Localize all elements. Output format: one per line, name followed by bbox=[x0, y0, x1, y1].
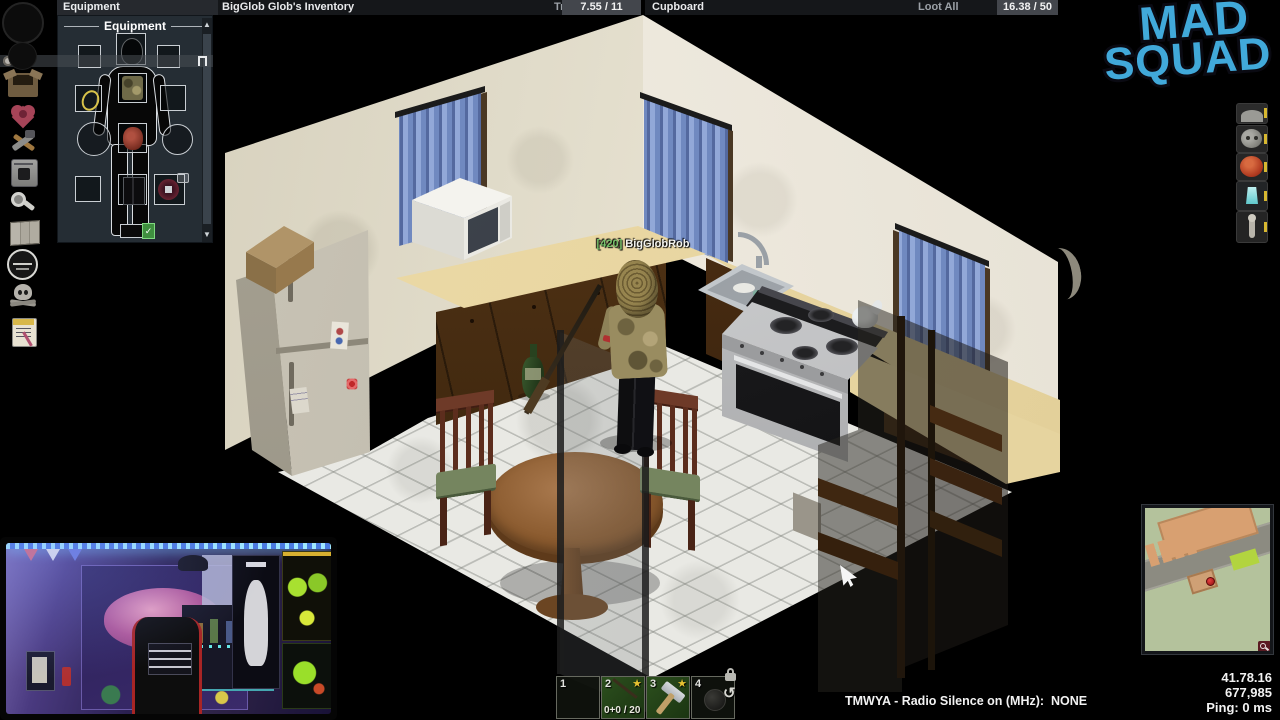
sink-dish bbox=[733, 283, 755, 293]
character-legs bbox=[617, 371, 656, 450]
figure-head bbox=[1248, 214, 1256, 222]
zoom-stick bbox=[1265, 647, 1269, 651]
door-frame-post bbox=[557, 330, 564, 674]
figure-icon[interactable] bbox=[1236, 211, 1268, 243]
loot-title: Cupboard bbox=[652, 0, 704, 15]
slot-torso[interactable] bbox=[118, 73, 147, 103]
cabinet-knob bbox=[532, 305, 536, 309]
angry-face-icon[interactable] bbox=[1236, 153, 1268, 181]
sloth-eye bbox=[1254, 136, 1258, 140]
session-stats: 41.78.16 677,985 Ping: 0 ms bbox=[1206, 670, 1272, 715]
furnace-lid bbox=[14, 163, 33, 165]
journal-icon[interactable] bbox=[12, 318, 37, 347]
ammo-count: 0+0 / 20 bbox=[604, 705, 640, 716]
equipped-check: ✓ bbox=[142, 223, 155, 239]
furnace-window bbox=[18, 168, 30, 180]
chair-slat bbox=[479, 404, 484, 467]
chair-leg bbox=[440, 497, 447, 546]
player-nametag: [420] BigGlobRob bbox=[558, 238, 728, 250]
camo-shirt-icon bbox=[122, 76, 143, 100]
slot-number: 4 bbox=[695, 678, 701, 690]
slot-number: 1 bbox=[560, 678, 566, 690]
slot-necklace[interactable] bbox=[75, 85, 102, 112]
tool-head bbox=[25, 130, 35, 138]
fav-notch bbox=[1264, 191, 1267, 201]
radio-status: TMWYA - Radio Silence on (MHz): NONE bbox=[845, 694, 1087, 708]
fridge-flower-magnet bbox=[345, 377, 359, 391]
stove-burner bbox=[770, 317, 802, 334]
lantern-glass bbox=[1246, 187, 1258, 204]
barricade-post bbox=[897, 316, 905, 678]
ping-text: Ping: 0 ms bbox=[1206, 700, 1272, 715]
hotbar-lock-icon[interactable] bbox=[724, 668, 737, 681]
character-shoe bbox=[614, 444, 631, 454]
search-handle bbox=[23, 200, 36, 211]
hotbar-slot-1[interactable]: 1 bbox=[556, 676, 600, 719]
necklace-icon bbox=[79, 88, 103, 114]
equipment-scrollbar[interactable]: ▲ ▼ bbox=[202, 18, 212, 242]
clock-circle[interactable] bbox=[2, 2, 44, 44]
fridge-kid-drawing bbox=[330, 321, 349, 349]
pin-icon[interactable] bbox=[198, 56, 207, 66]
number-text: 677,985 bbox=[1206, 685, 1272, 700]
slot-left-lower[interactable] bbox=[75, 176, 101, 202]
stove-knob bbox=[800, 365, 804, 369]
character-ghillie-hood bbox=[616, 260, 658, 318]
mad-squad-logo: MAD SQUAD bbox=[1097, 0, 1277, 83]
chair-slat bbox=[440, 410, 445, 473]
box-opening bbox=[13, 75, 33, 85]
skull-eye bbox=[24, 290, 28, 295]
sink-faucet-base bbox=[756, 256, 762, 268]
glow-overlay bbox=[6, 543, 331, 714]
loot-weight: 16.38 / 50 bbox=[997, 0, 1058, 15]
map-icon[interactable] bbox=[10, 220, 40, 246]
chair-leg bbox=[688, 500, 695, 551]
slot-back[interactable] bbox=[160, 85, 186, 111]
angry-face-shape bbox=[1240, 156, 1263, 177]
sloth-face-shape bbox=[1241, 129, 1262, 148]
favorite-star-icon: ★ bbox=[632, 677, 642, 690]
equipment-header: Equipment bbox=[58, 16, 212, 33]
slot-hand-left[interactable] bbox=[77, 122, 111, 156]
pants-icon bbox=[123, 177, 145, 205]
fav-notch bbox=[1264, 108, 1267, 118]
cabinet-knob bbox=[470, 319, 474, 323]
scroll-down-icon[interactable]: ▼ bbox=[203, 230, 211, 239]
skull-head bbox=[14, 284, 32, 300]
fridge-note-paper bbox=[290, 387, 310, 414]
watch-face-icon bbox=[165, 186, 172, 193]
inventory-title: BigGlob Glob's Inventory bbox=[222, 0, 354, 15]
skull-icon[interactable] bbox=[10, 284, 36, 310]
coordinates-text: 41.78.16 bbox=[1206, 670, 1272, 685]
stove-burner bbox=[808, 308, 834, 322]
lock-body bbox=[725, 673, 736, 681]
journal-band bbox=[13, 319, 34, 325]
slot-belly[interactable] bbox=[118, 123, 147, 153]
fav-notch bbox=[1264, 222, 1267, 232]
loot-window-titlebar[interactable]: Cupboard Loot All 16.38 / 50 bbox=[645, 0, 1058, 15]
header-line bbox=[171, 26, 206, 27]
chair-leg bbox=[484, 490, 491, 535]
fav-notch bbox=[1264, 134, 1267, 144]
sloth-eye bbox=[1246, 136, 1250, 140]
badge-text-line bbox=[16, 268, 29, 270]
chair-left[interactable] bbox=[436, 389, 498, 557]
chair-slat bbox=[692, 408, 697, 475]
hotbar-slot-2[interactable]: 2 ★ 0+0 / 20 bbox=[601, 676, 645, 719]
inventory-box-icon[interactable] bbox=[8, 73, 38, 97]
inventory-weight: 7.55 / 11 bbox=[562, 0, 641, 15]
slot-hand-right[interactable] bbox=[162, 124, 193, 155]
search-icon[interactable] bbox=[9, 190, 37, 217]
stove-knob bbox=[820, 372, 824, 376]
chair-slat bbox=[466, 406, 471, 469]
loot-all-button[interactable]: Loot All bbox=[918, 0, 959, 15]
scroll-up-icon[interactable]: ▲ bbox=[203, 20, 211, 29]
slot-wrist[interactable] bbox=[154, 174, 185, 205]
stove-knob bbox=[760, 351, 764, 355]
gray-face-icon[interactable] bbox=[1236, 103, 1268, 124]
hotbar-cycle-icon[interactable]: ↺ bbox=[723, 684, 741, 702]
fav-notch bbox=[1264, 162, 1267, 172]
nametag-tag: [420] bbox=[597, 238, 623, 250]
faction-badge-icon[interactable] bbox=[7, 249, 38, 280]
header-line bbox=[64, 26, 99, 27]
minimap-player-marker bbox=[1206, 577, 1215, 586]
lantern-icon[interactable] bbox=[1236, 181, 1268, 211]
nametag-name: BigGlobRob bbox=[625, 238, 689, 250]
right-icon-stack bbox=[1236, 103, 1270, 243]
chair-slat bbox=[488, 403, 493, 466]
equipment-window[interactable]: Equipment bbox=[57, 15, 213, 243]
moodle-circle bbox=[8, 42, 37, 70]
health-heart-icon[interactable] bbox=[11, 101, 35, 125]
webcam-feed bbox=[6, 543, 331, 714]
skull-eye bbox=[18, 290, 22, 295]
stove-burner bbox=[792, 346, 818, 360]
equipment-header-label: Equipment bbox=[104, 19, 166, 33]
chair-slat bbox=[683, 407, 688, 474]
wine-bottle-label bbox=[525, 368, 541, 380]
hotbar-slot-3[interactable]: 3 ★ bbox=[646, 676, 690, 719]
webcam-overlay bbox=[0, 537, 337, 720]
logo-line-2: SQUAD bbox=[1099, 34, 1276, 83]
furnace-icon[interactable] bbox=[11, 159, 38, 187]
stove-knob bbox=[780, 358, 784, 362]
slot-shoes[interactable] bbox=[120, 224, 144, 238]
chair-slat bbox=[670, 405, 675, 472]
equipment-tab[interactable]: Equipment bbox=[57, 0, 218, 15]
left-sidebar bbox=[0, 0, 48, 360]
minimap[interactable] bbox=[1142, 505, 1273, 654]
heart-spot bbox=[19, 110, 27, 118]
organ-icon bbox=[123, 127, 143, 150]
gray-face-shape bbox=[1241, 110, 1263, 122]
chair-slat bbox=[453, 408, 458, 471]
character-shoe bbox=[637, 447, 654, 457]
minimap-zoom-icon[interactable] bbox=[1258, 641, 1271, 654]
hammer-handle bbox=[656, 692, 676, 715]
barricade-post bbox=[928, 330, 935, 670]
crafting-tools-icon[interactable] bbox=[9, 130, 37, 156]
game-screen: [420] BigGlobRob BigGlob Glob's Inventor… bbox=[0, 0, 1280, 720]
badge-text-line bbox=[13, 263, 32, 265]
stove-burner bbox=[826, 338, 858, 355]
slot-number: 2 bbox=[605, 678, 611, 690]
slot-pants[interactable] bbox=[118, 174, 147, 205]
sloth-face-icon[interactable] bbox=[1236, 125, 1268, 153]
glasses-icon bbox=[177, 173, 189, 183]
stove-knob bbox=[740, 344, 744, 348]
